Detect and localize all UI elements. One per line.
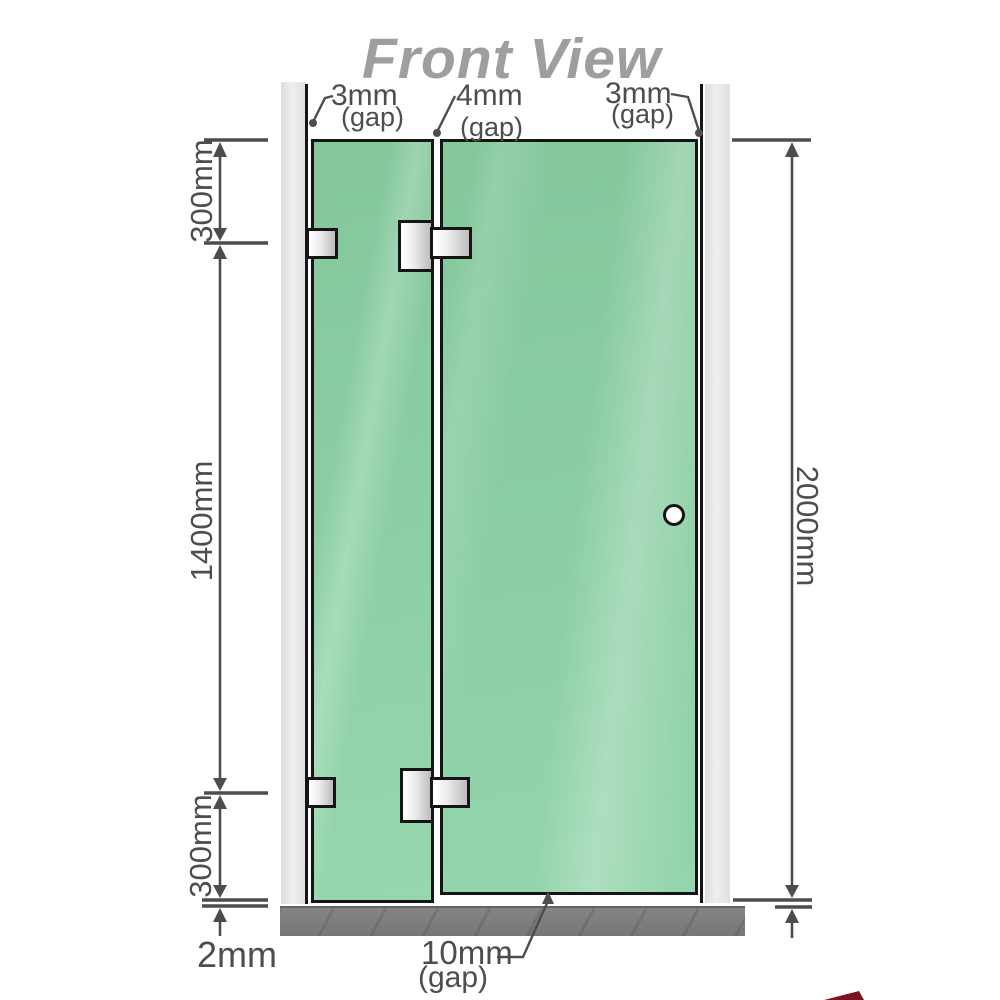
- logo-fragment: [824, 991, 864, 1000]
- wall-channel-left: [281, 82, 306, 904]
- hinge-bottom-left-plate: [400, 768, 434, 823]
- dim-label-300-bottom: 300mm: [183, 794, 219, 897]
- glass-panel-door: [440, 139, 698, 895]
- leader-dot: [309, 119, 317, 127]
- wall-channel-right: [705, 84, 730, 903]
- dim-label-2000: 2000mm: [789, 466, 825, 587]
- wall-bracket-top: [306, 228, 338, 259]
- dimension-arrow-down: [213, 778, 227, 791]
- hinge-bottom-right-plate: [430, 777, 470, 808]
- dim-label-300-top: 300mm: [184, 139, 220, 242]
- wall-bracket-bottom: [306, 777, 336, 808]
- gap-label-top-mid-value: 4mm: [456, 80, 523, 112]
- gap-label-bottom-unit: (gap): [418, 962, 488, 994]
- dimension-arrow-up: [213, 908, 227, 922]
- gap-label-top-left-unit: (gap): [341, 103, 404, 131]
- dimension-arrow-down: [785, 885, 799, 898]
- dimension-arrow-up: [785, 142, 799, 157]
- hinge-top-left-plate: [398, 220, 434, 272]
- floor-base: [280, 906, 745, 936]
- dim-label-2mm: 2mm: [197, 936, 277, 974]
- wall-channel-right-inner-edge: [700, 84, 703, 903]
- leader-dot: [433, 129, 441, 137]
- leader-line-gap-right: [671, 94, 699, 131]
- gap-label-top-right-unit: (gap): [611, 100, 674, 128]
- leader-line-gap-left: [313, 96, 333, 122]
- door-handle-knob: [663, 504, 685, 526]
- front-view-diagram: Front View: [0, 0, 1000, 1000]
- dimension-arrow-up: [213, 245, 227, 259]
- leader-line-gap-mid: [437, 96, 455, 132]
- gap-label-top-mid-unit: (gap): [460, 113, 523, 141]
- dimension-arrow-up: [785, 909, 799, 923]
- hinge-top-right-plate: [430, 227, 472, 259]
- dim-label-1400: 1400mm: [184, 461, 220, 582]
